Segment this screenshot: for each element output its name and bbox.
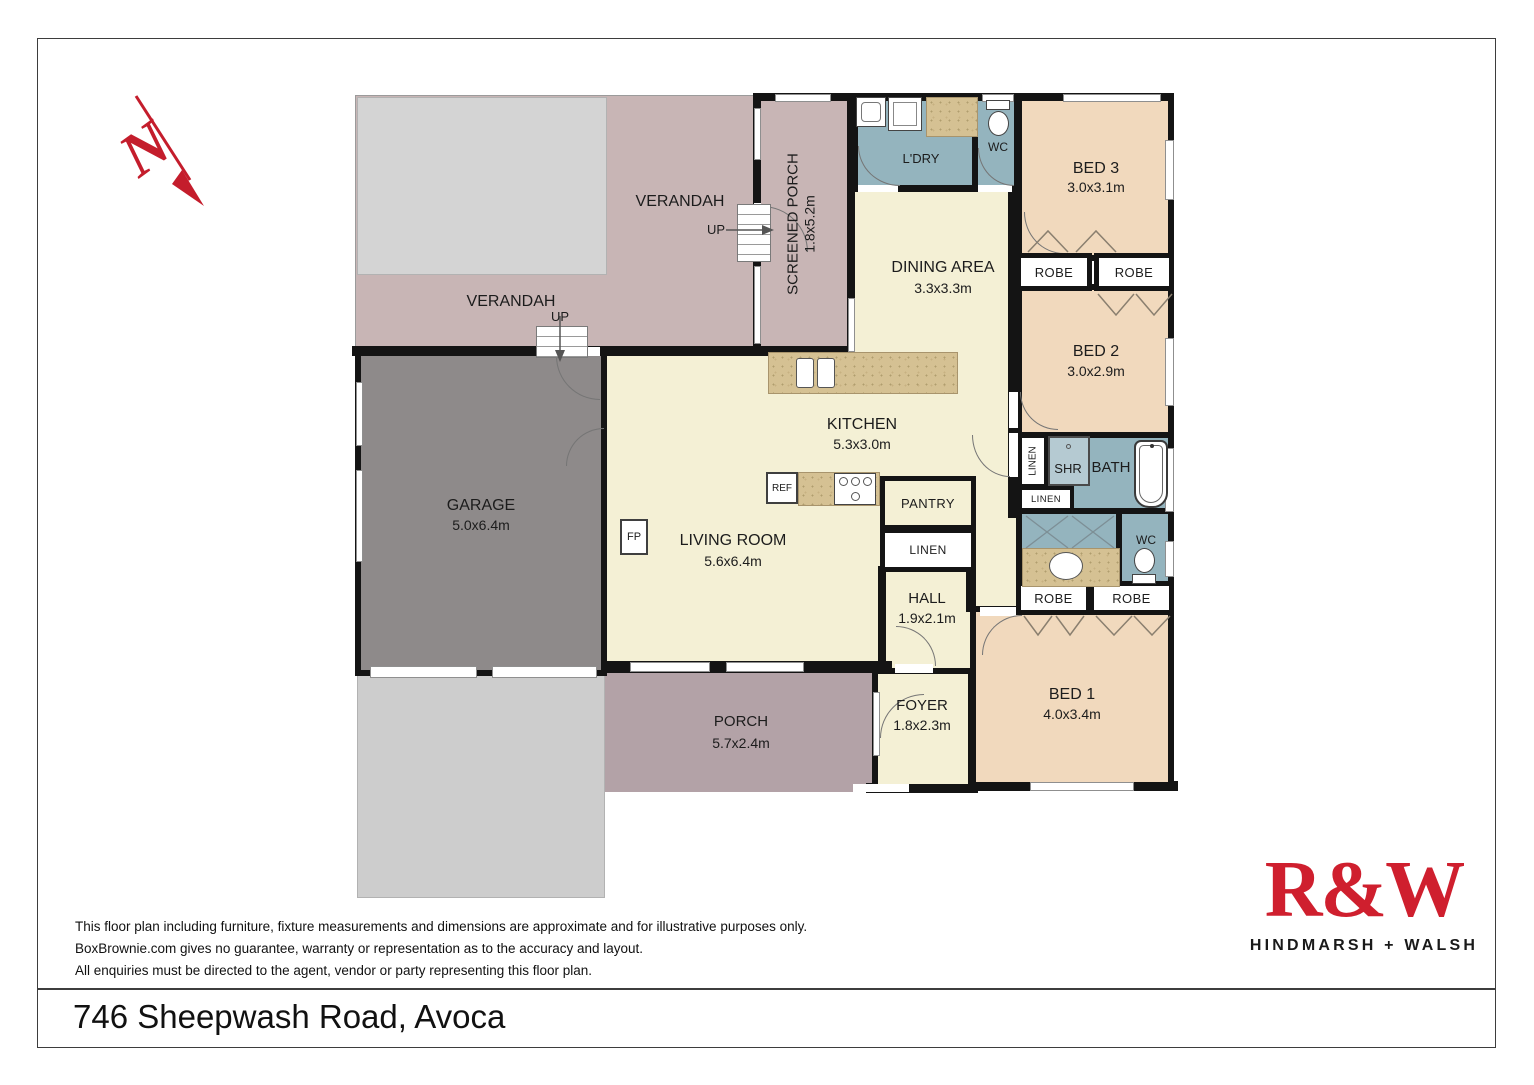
toilet-base xyxy=(1132,574,1156,584)
bed2-dims: 3.0x2.9m xyxy=(1067,363,1125,379)
stove-icon xyxy=(834,473,876,505)
robe-label: ROBE xyxy=(1115,265,1153,280)
window xyxy=(1030,782,1134,791)
robe-label: ROBE xyxy=(1112,591,1150,606)
kitchen-dims: 5.3x3.0m xyxy=(833,436,891,452)
disclaimer-line: BoxBrownie.com gives no guarantee, warra… xyxy=(75,938,807,960)
burner-icon xyxy=(851,477,860,486)
address-bar: 746 Sheepwash Road, Avoca xyxy=(37,990,1496,1048)
linen-label: LINEN xyxy=(909,543,946,557)
dining-dims: 3.3x3.3m xyxy=(914,280,972,296)
disclaimer-line: All enquiries must be directed to the ag… xyxy=(75,960,807,982)
bed3-dims: 3.0x3.1m xyxy=(1067,179,1125,195)
north-arrow-icon: N xyxy=(112,92,216,210)
door-opening xyxy=(858,185,898,192)
pantry-box: PANTRY xyxy=(880,476,976,530)
driveway-area xyxy=(357,674,605,898)
north-letter: N xyxy=(112,107,185,190)
hall-dims: 1.9x2.1m xyxy=(898,610,956,626)
bed3-label: BED 3 xyxy=(1073,160,1119,178)
window xyxy=(726,662,804,672)
property-address: 746 Sheepwash Road, Avoca xyxy=(73,998,505,1036)
toilet-icon xyxy=(986,100,1010,136)
kitchen-sink-icon xyxy=(796,358,814,388)
fp-label: FP xyxy=(627,531,641,543)
bath-label: BATH xyxy=(1092,459,1131,476)
bathtub-icon xyxy=(1134,440,1168,508)
burner-icon xyxy=(851,492,860,501)
verandah-label: VERANDAH xyxy=(467,293,556,311)
robe-label: ROBE xyxy=(1034,591,1072,606)
door-opening xyxy=(980,607,1016,616)
window xyxy=(1165,338,1174,406)
washer-door xyxy=(893,102,917,126)
laundry-label: L'DRY xyxy=(903,151,940,166)
window xyxy=(1165,541,1174,577)
bifold-doors-icon xyxy=(1022,614,1086,638)
garage-door xyxy=(370,666,477,678)
window xyxy=(754,266,761,344)
door-opening xyxy=(1009,433,1018,477)
ref-box: REF xyxy=(766,472,798,504)
window xyxy=(630,662,710,672)
vanity-basin-icon xyxy=(1049,552,1083,580)
linen-label: LINEN xyxy=(1031,494,1061,505)
toilet-icon xyxy=(1132,548,1156,584)
porch-area xyxy=(605,672,875,792)
door-opening xyxy=(978,185,1012,192)
sliding-doors-icon xyxy=(1024,514,1116,550)
window xyxy=(848,298,855,352)
disclaimer: This floor plan including furniture, fix… xyxy=(75,916,807,982)
porch-dims: 5.7x2.4m xyxy=(712,735,770,751)
linen-box: LINEN xyxy=(880,528,976,572)
up-label: UP xyxy=(707,222,725,237)
kitchen-sink-icon xyxy=(817,358,835,388)
bifold-doors-icon xyxy=(1094,614,1172,638)
garage-label: GARAGE xyxy=(447,497,515,515)
room-dims: 1.8x5.2m xyxy=(802,153,818,295)
pantry-label: PANTRY xyxy=(901,496,955,511)
living-label: LIVING ROOM xyxy=(680,532,787,550)
screened-porch-label: SCREENED PORCH 1.8x5.2m xyxy=(785,153,818,295)
floor-plan-page: N xyxy=(0,0,1534,1085)
door-opening xyxy=(1009,392,1018,428)
window xyxy=(356,382,363,446)
wc-label: WC xyxy=(1136,533,1156,547)
laundry-tub-icon xyxy=(856,97,886,127)
kitchen-label: KITCHEN xyxy=(827,416,897,434)
bifold-doors-icon xyxy=(1096,292,1174,318)
toilet-tank xyxy=(986,100,1010,110)
bifold-doors-icon xyxy=(1026,228,1146,254)
tub-basin xyxy=(861,102,881,122)
tap-icon xyxy=(1150,444,1154,448)
garage-door xyxy=(492,666,597,678)
washing-machine-icon xyxy=(888,97,922,131)
ref-label: REF xyxy=(772,483,792,494)
logo-brand: R&W xyxy=(1246,850,1482,932)
laundry-counter xyxy=(926,97,978,137)
robe-box: ROBE xyxy=(1094,253,1174,291)
bed1-label: BED 1 xyxy=(1049,686,1095,704)
stairs-arrow-icon xyxy=(726,224,776,236)
bed2-label: BED 2 xyxy=(1073,343,1119,361)
burner-icon xyxy=(863,477,872,486)
porch-step-opening xyxy=(853,784,909,792)
front-door-opening xyxy=(873,692,880,756)
fireplace-box: FP xyxy=(620,519,648,555)
agency-logo: R&W HINDMARSH + WALSH xyxy=(1246,850,1482,955)
dining-label: DINING AREA xyxy=(891,259,994,277)
window xyxy=(775,94,831,102)
shower-head-icon xyxy=(1066,444,1071,449)
wall xyxy=(878,566,886,674)
porch-label: PORCH xyxy=(714,713,768,730)
deck-area xyxy=(357,97,607,275)
room-name: SCREENED PORCH xyxy=(785,153,802,295)
verandah-label: VERANDAH xyxy=(636,193,725,211)
living-dims: 5.6x6.4m xyxy=(704,553,762,569)
robe-box: ROBE xyxy=(1016,253,1092,291)
up-label: UP xyxy=(551,309,569,324)
foyer-dims: 1.8x2.3m xyxy=(893,717,951,733)
window xyxy=(356,470,363,562)
hall-label: HALL xyxy=(908,590,946,607)
burner-icon xyxy=(839,477,848,486)
wc-label: WC xyxy=(988,140,1008,154)
bed1-dims: 4.0x3.4m xyxy=(1043,706,1101,722)
logo-subtitle: HINDMARSH + WALSH xyxy=(1246,937,1482,955)
disclaimer-line: This floor plan including furniture, fix… xyxy=(75,916,807,938)
tub-inner xyxy=(1139,445,1163,503)
toilet-bowl xyxy=(988,111,1009,136)
window xyxy=(1063,94,1161,102)
foyer-label: FOYER xyxy=(896,697,948,714)
garage-dims: 5.0x6.4m xyxy=(452,517,510,533)
linen-vertical-label: LINEN xyxy=(1028,446,1039,475)
robe-label: ROBE xyxy=(1035,265,1073,280)
window xyxy=(754,108,761,160)
linen-box: LINEN xyxy=(1018,486,1074,512)
toilet-bowl xyxy=(1134,548,1155,573)
shr-label: SHR xyxy=(1054,461,1081,476)
window xyxy=(1165,140,1174,200)
